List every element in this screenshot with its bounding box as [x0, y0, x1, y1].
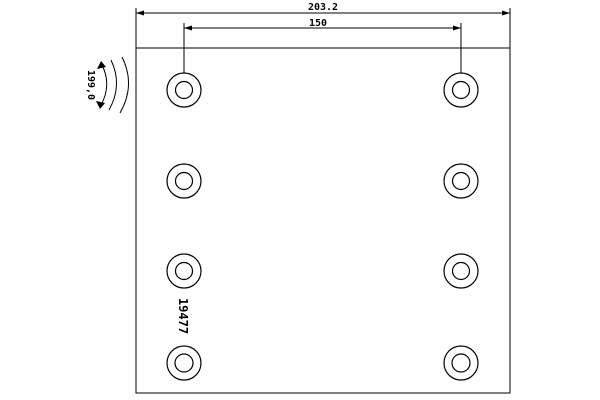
- hole-inner: [176, 82, 193, 99]
- dimension-hole-spacing: 150: [184, 18, 461, 76]
- hole-inner: [175, 354, 193, 372]
- hole-inner: [453, 82, 470, 99]
- curvature-arrow-top-icon: [97, 61, 106, 69]
- overall-width-label: 203.2: [308, 2, 338, 13]
- rivet-hole: [167, 73, 201, 107]
- curvature-arc-inner: [109, 60, 117, 110]
- hole-inner: [176, 173, 193, 190]
- rivet-hole: [444, 73, 478, 107]
- brake-lining-drawing: 203.2 150 199,0: [0, 0, 600, 400]
- rivet-hole: [444, 346, 478, 380]
- curvature-symbol: 199,0: [85, 57, 129, 113]
- arc-radius-label: 199,0: [85, 70, 96, 100]
- dim-arrow-left-icon: [136, 11, 144, 16]
- rivet-hole: [167, 346, 201, 380]
- hole-column-right: [444, 73, 478, 380]
- rivet-hole: [444, 164, 478, 198]
- rivet-hole: [167, 254, 201, 288]
- hole-inner: [452, 354, 470, 372]
- hole-spacing-label: 150: [309, 18, 327, 29]
- curvature-arc-outer: [120, 57, 129, 113]
- dim-arrow-right-icon: [502, 11, 510, 16]
- curvature-arrow-bottom-icon: [96, 101, 105, 109]
- hole-inner: [453, 263, 470, 280]
- rivet-hole: [444, 254, 478, 288]
- technical-drawing-canvas: 203.2 150 199,0: [0, 0, 600, 400]
- curvature-arrow: [101, 65, 107, 105]
- hole-inner: [453, 173, 470, 190]
- hole-inner: [176, 263, 193, 280]
- part-number-label: 19477: [176, 298, 190, 334]
- rivet-hole: [167, 164, 201, 198]
- dim-arrow-left-icon: [184, 26, 192, 31]
- dim-arrow-right-icon: [453, 26, 461, 31]
